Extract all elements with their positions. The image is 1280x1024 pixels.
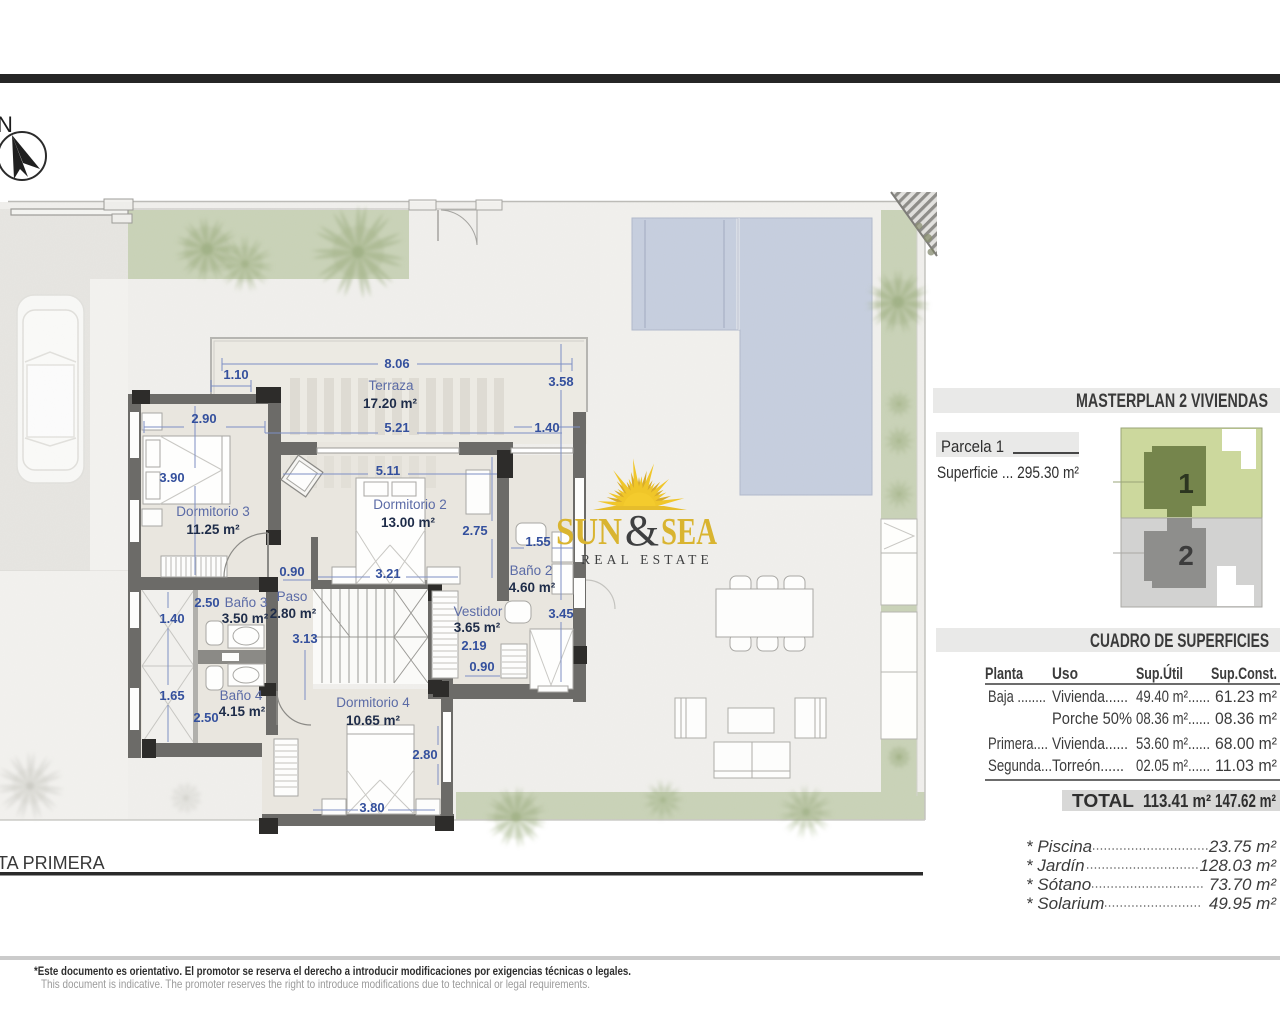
- svg-text:0.90: 0.90: [469, 659, 494, 674]
- svg-text:Baño 4: Baño 4: [220, 688, 263, 703]
- svg-text:Vivienda......: Vivienda......: [1052, 688, 1128, 706]
- svg-text:Torreón......: Torreón......: [1052, 757, 1124, 775]
- svg-text:&: &: [625, 506, 659, 555]
- svg-text:Baño 3: Baño 3: [225, 595, 268, 610]
- svg-text:5.21: 5.21: [384, 420, 409, 435]
- svg-text:02.05 m²......: 02.05 m²......: [1136, 757, 1210, 775]
- svg-text:MASTERPLAN 2 VIVIENDAS: MASTERPLAN 2 VIVIENDAS: [1076, 391, 1268, 412]
- svg-text:Dormitorio 2: Dormitorio 2: [373, 497, 447, 512]
- svg-text:5.11: 5.11: [376, 463, 401, 478]
- svg-text:Parcela 1: Parcela 1: [941, 437, 1004, 456]
- svg-text:* Solarium: * Solarium: [1026, 894, 1104, 913]
- svg-text:2.50: 2.50: [193, 710, 218, 725]
- svg-text:128.03 m²: 128.03 m²: [1199, 856, 1277, 875]
- svg-text:* Jardín: * Jardín: [1026, 856, 1085, 875]
- svg-text:2.19: 2.19: [461, 638, 486, 653]
- svg-text:1: 1: [1178, 468, 1194, 499]
- svg-text:This document is indicative. T: This document is indicative. The promote…: [41, 977, 590, 991]
- svg-text:1.40: 1.40: [159, 611, 184, 626]
- svg-text:3.80: 3.80: [359, 800, 384, 815]
- svg-text:Paso: Paso: [277, 589, 308, 604]
- svg-text:3.50 m²: 3.50 m²: [222, 611, 269, 626]
- svg-text:2.80 m²: 2.80 m²: [270, 606, 317, 621]
- svg-text:1.40: 1.40: [534, 420, 559, 435]
- svg-text:68.00 m²: 68.00 m²: [1215, 735, 1277, 753]
- svg-text:Sup.Const.: Sup.Const.: [1211, 664, 1277, 683]
- svg-text:Baño 2: Baño 2: [510, 563, 553, 578]
- svg-text:49.40 m²......: 49.40 m²......: [1136, 688, 1210, 706]
- svg-text:3.45: 3.45: [548, 606, 573, 621]
- svg-text:4.15 m²: 4.15 m²: [219, 704, 266, 719]
- svg-text:Porche 50%: Porche 50%: [1052, 710, 1132, 728]
- svg-text:0.90: 0.90: [279, 564, 304, 579]
- svg-text:*Este documento es orientativo: *Este documento es orientativo. El promo…: [34, 964, 631, 978]
- svg-text:Primera....: Primera....: [988, 735, 1048, 753]
- svg-text:13.00 m²: 13.00 m²: [381, 515, 436, 530]
- svg-text:TOTAL: TOTAL: [1072, 791, 1134, 811]
- svg-text:3.13: 3.13: [292, 631, 317, 646]
- svg-text:53.60 m²......: 53.60 m²......: [1136, 735, 1210, 753]
- svg-text:SUN: SUN: [556, 511, 622, 553]
- svg-text:* Sótano: * Sótano: [1026, 875, 1091, 894]
- svg-text:Superficie ... 295.30 m²: Superficie ... 295.30 m²: [937, 463, 1079, 482]
- svg-text:1.65: 1.65: [159, 688, 184, 703]
- svg-text:1.55: 1.55: [525, 534, 550, 549]
- svg-text:2.50: 2.50: [194, 595, 219, 610]
- svg-text:23.75 m²: 23.75 m²: [1208, 837, 1277, 856]
- svg-text:3.21: 3.21: [375, 566, 400, 581]
- svg-text:* Piscina: * Piscina: [1026, 837, 1092, 856]
- svg-text:11.03 m²: 11.03 m²: [1215, 757, 1277, 775]
- svg-text:2.90: 2.90: [191, 411, 216, 426]
- svg-text:SEA: SEA: [661, 511, 717, 553]
- svg-text:113.41 m²: 113.41 m²: [1143, 791, 1211, 811]
- svg-text:N: N: [0, 112, 13, 137]
- svg-text:TA PRIMERA: TA PRIMERA: [0, 853, 105, 873]
- svg-text:2: 2: [1178, 540, 1194, 571]
- svg-text:73.70 m²: 73.70 m²: [1209, 875, 1277, 894]
- svg-text:17.20 m²: 17.20 m²: [363, 396, 418, 411]
- svg-text:Dormitorio 3: Dormitorio 3: [176, 504, 250, 519]
- svg-text:61.23 m²: 61.23 m²: [1215, 688, 1277, 706]
- svg-text:Baja ........: Baja ........: [988, 688, 1046, 706]
- svg-text:Sup.Útil: Sup.Útil: [1136, 664, 1183, 683]
- svg-text:49.95 m²: 49.95 m²: [1209, 894, 1277, 913]
- svg-text:2.80: 2.80: [412, 747, 437, 762]
- svg-text:CUADRO DE SUPERFICIES: CUADRO DE SUPERFICIES: [1090, 631, 1269, 652]
- svg-text:08.36 m²: 08.36 m²: [1215, 710, 1277, 728]
- svg-text:Vivienda......: Vivienda......: [1052, 735, 1128, 753]
- svg-text:4.60 m²: 4.60 m²: [509, 580, 556, 595]
- svg-text:Vestidor: Vestidor: [454, 604, 503, 619]
- svg-text:1.10: 1.10: [223, 367, 248, 382]
- svg-text:3.58: 3.58: [548, 374, 573, 389]
- svg-text:Terraza: Terraza: [368, 378, 414, 393]
- svg-text:2.75: 2.75: [462, 523, 487, 538]
- svg-text:3.90: 3.90: [159, 470, 184, 485]
- svg-text:3.65 m²: 3.65 m²: [454, 620, 501, 635]
- svg-text:Planta: Planta: [985, 664, 1023, 683]
- svg-text:147.62 m²: 147.62 m²: [1215, 791, 1276, 811]
- svg-text:11.25 m²: 11.25 m²: [186, 522, 240, 537]
- svg-text:Segunda...: Segunda...: [988, 757, 1052, 775]
- svg-text:8.06: 8.06: [384, 356, 409, 371]
- svg-text:10.65 m²: 10.65 m²: [346, 713, 401, 728]
- svg-text:Dormitorio 4: Dormitorio 4: [336, 695, 410, 710]
- svg-text:Uso: Uso: [1052, 664, 1078, 683]
- svg-text:08.36 m²......: 08.36 m²......: [1136, 710, 1210, 728]
- svg-text:REAL ESTATE: REAL ESTATE: [581, 552, 713, 567]
